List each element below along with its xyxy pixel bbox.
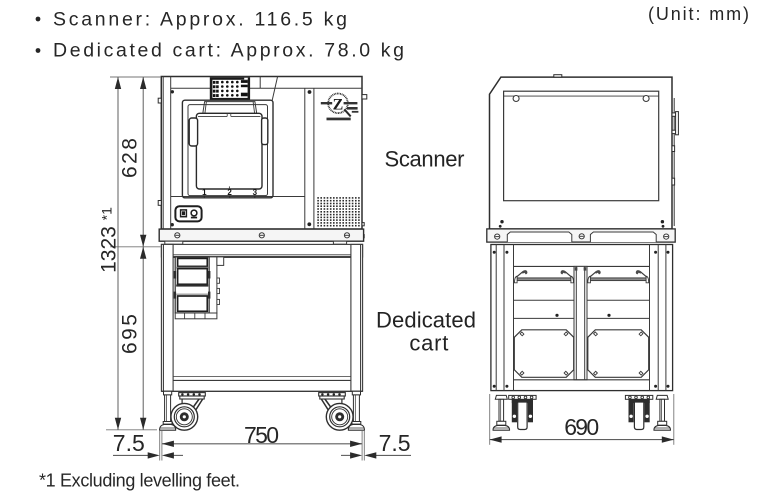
svg-text:Scanner: Scanner	[385, 147, 465, 172]
svg-text:690: 690	[564, 414, 599, 440]
svg-text:1323 *1: 1323 *1	[98, 207, 121, 273]
svg-text:7.5: 7.5	[379, 430, 411, 456]
svg-text:(Unit: mm): (Unit: mm)	[648, 4, 749, 24]
svg-text:7.5: 7.5	[113, 430, 145, 456]
svg-text:Dedicated cart: Approx. 78.0 k: Dedicated cart: Approx. 78.0 kg	[53, 40, 404, 62]
svg-text:628: 628	[119, 138, 142, 178]
svg-text:Z: Z	[333, 96, 344, 113]
svg-text:Dedicated: Dedicated	[376, 308, 476, 333]
svg-text:750: 750	[244, 422, 279, 448]
svg-text:Scanner: Approx. 116.5 kg: Scanner: Approx. 116.5 kg	[53, 9, 347, 31]
svg-text:695: 695	[119, 314, 142, 354]
svg-text:cart: cart	[409, 331, 448, 356]
svg-text:*1 Excluding levelling feet.: *1 Excluding levelling feet.	[39, 471, 240, 491]
